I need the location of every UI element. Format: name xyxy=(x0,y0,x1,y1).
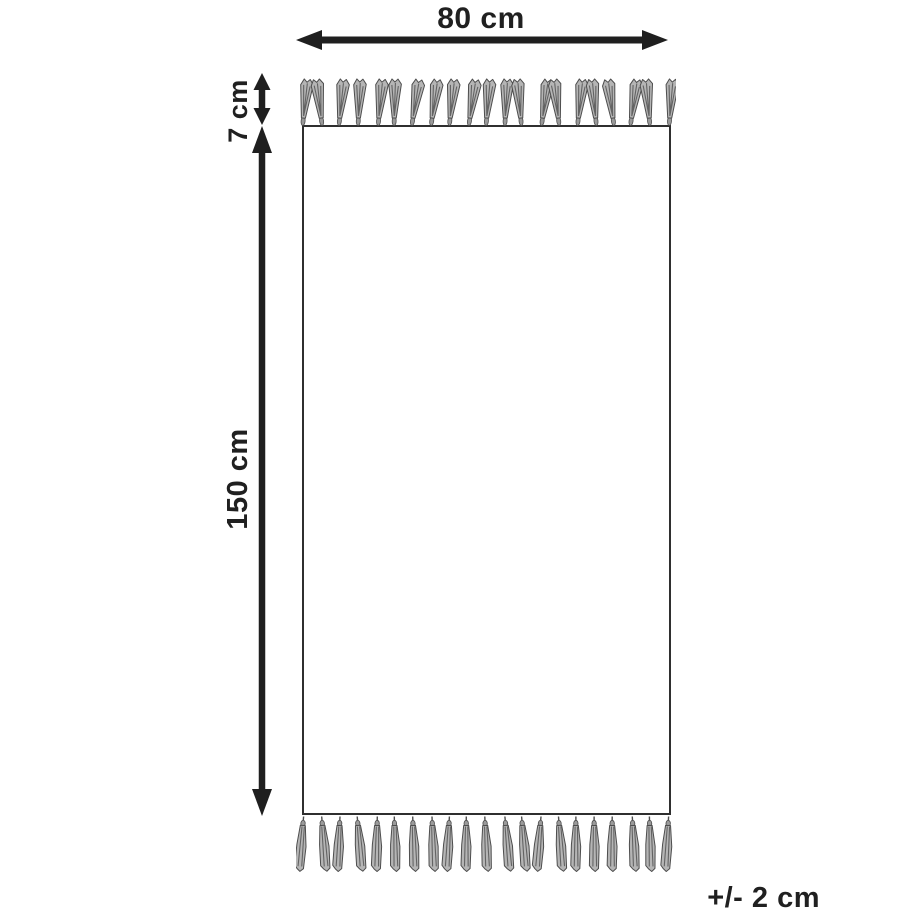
rug-dimension-diagram: 80 cm 7 cm 150 cm +/- 2 cm xyxy=(0,0,920,920)
tolerance-note: +/- 2 cm xyxy=(600,882,820,914)
rug-outline xyxy=(302,125,671,815)
top-fringe-tassels xyxy=(296,74,676,127)
fringe-height-label: 7 cm xyxy=(223,69,253,153)
fringe-height-arrow xyxy=(250,73,274,125)
rug-height-label: 150 cm xyxy=(223,421,253,537)
width-dimension-arrow xyxy=(296,28,668,52)
bottom-fringe-tassels xyxy=(296,816,676,878)
rug-height-arrow xyxy=(250,126,274,816)
